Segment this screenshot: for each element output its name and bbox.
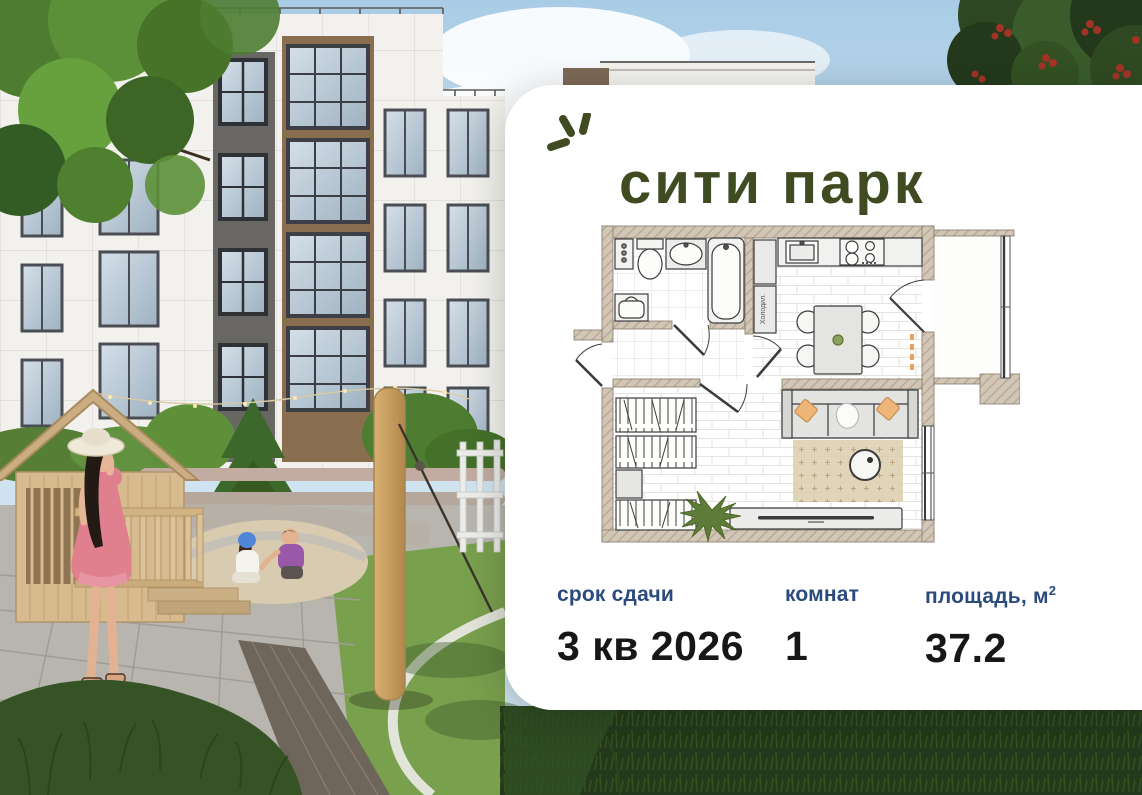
coffee-table-icon (850, 450, 880, 480)
brand-logo: сити парк (545, 109, 1105, 209)
brand-logo-text: сити парк (619, 155, 926, 213)
floor-plan: Холодил. (568, 222, 1020, 548)
bathtub-icon (708, 238, 744, 323)
wardrobe-shelf-icon (616, 436, 696, 468)
stat-rooms-value: 1 (785, 623, 925, 670)
rug-icon (793, 440, 903, 502)
sofa-icon (782, 390, 918, 438)
stat-deadline: срок сдачи 3 кв 2026 (557, 583, 785, 672)
washbasin-icon (666, 239, 706, 269)
throw-blanket (836, 403, 858, 428)
playhouse-step2 (158, 601, 250, 614)
stove-icon (840, 239, 884, 265)
cabinet-icon (616, 470, 642, 498)
balcony-glazing (1001, 236, 1010, 378)
stats-row: срок сдачи 3 кв 2026 комнат 1 площадь, м… (557, 583, 1112, 672)
living-room-window (922, 426, 934, 520)
kitchen-sink-icon (786, 241, 818, 263)
playhouse-step (148, 588, 238, 601)
listing-card[interactable]: сити парк (505, 85, 1142, 710)
balcony-floor (934, 236, 1002, 378)
hallway-floor (613, 329, 745, 379)
stat-deadline-label: срок сдачи (557, 583, 785, 607)
floor-plan-svg: Холодил. (568, 222, 1020, 548)
stat-deadline-value: 3 кв 2026 (557, 623, 785, 670)
lattice-fence (457, 440, 503, 552)
screenshot-root: сити парк (0, 0, 1142, 795)
washing-machine-icon (615, 294, 648, 321)
stat-area-label: площадь, м2 (925, 583, 1112, 609)
stat-rooms: комнат 1 (785, 583, 925, 672)
fridge-label: Холодил. (760, 294, 767, 324)
tv-console-icon (730, 508, 902, 529)
sun-hat-crown (82, 428, 110, 446)
zipline-trolley (415, 461, 425, 471)
sparkle-icon (547, 113, 599, 161)
table-plant-icon (833, 335, 843, 345)
stat-rooms-label: комнат (785, 583, 925, 607)
stat-area: площадь, м2 37.2 (925, 583, 1112, 672)
wardrobe-shelf-icon (616, 398, 696, 432)
stat-area-value: 37.2 (925, 625, 1112, 672)
entrance-door (576, 344, 602, 386)
stat-area-superscript: 2 (1049, 583, 1056, 598)
toilet-icon (637, 239, 663, 279)
